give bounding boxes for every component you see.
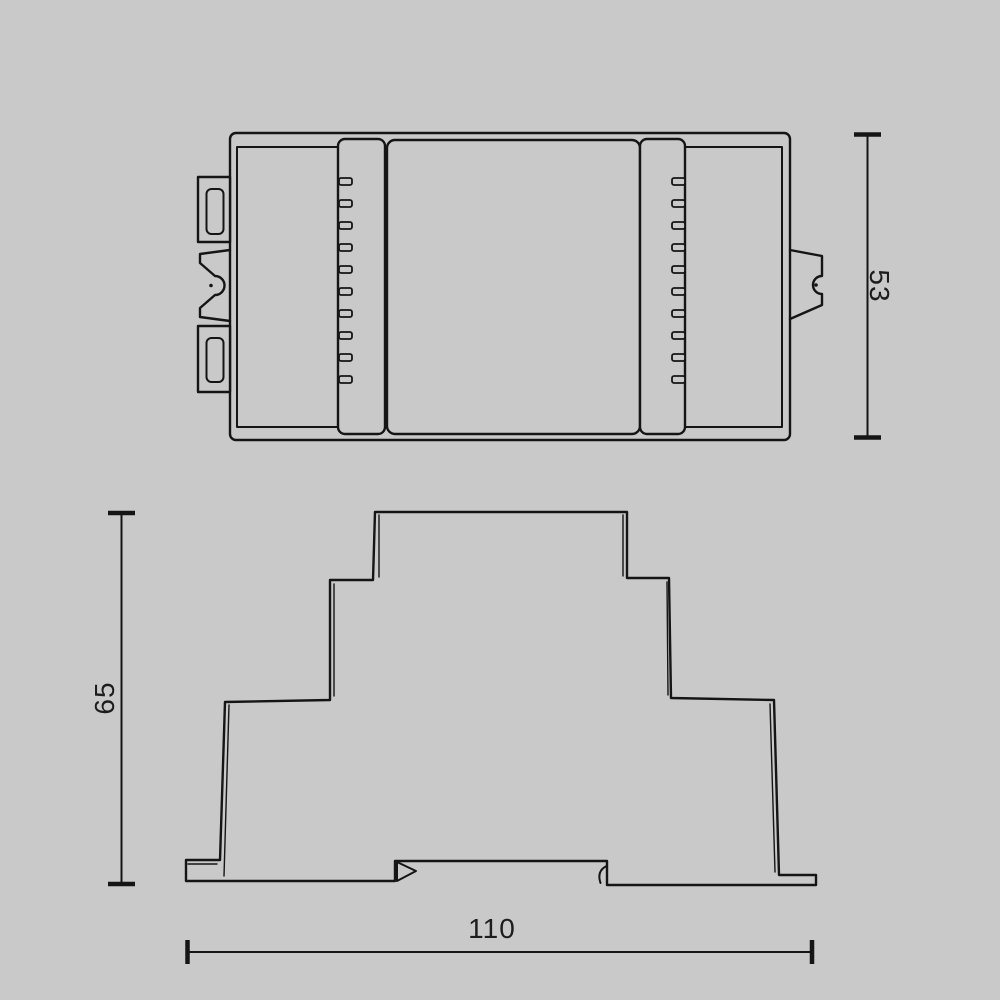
- mounting-tab-upper-left: [198, 177, 230, 242]
- top-view-cover-panel: [387, 140, 640, 434]
- mounting-tab-lower-left: [198, 326, 230, 392]
- bracket-hole-right: [814, 283, 818, 287]
- technical-drawing-canvas: 53 65 110: [0, 0, 1000, 1000]
- technical-drawing: 53 65 110: [0, 0, 1000, 1000]
- dimension-label-110: 110: [468, 913, 516, 944]
- bracket-hole-left: [209, 284, 213, 288]
- dimension-label-65: 65: [89, 681, 120, 714]
- dimension-label-53: 53: [864, 269, 895, 302]
